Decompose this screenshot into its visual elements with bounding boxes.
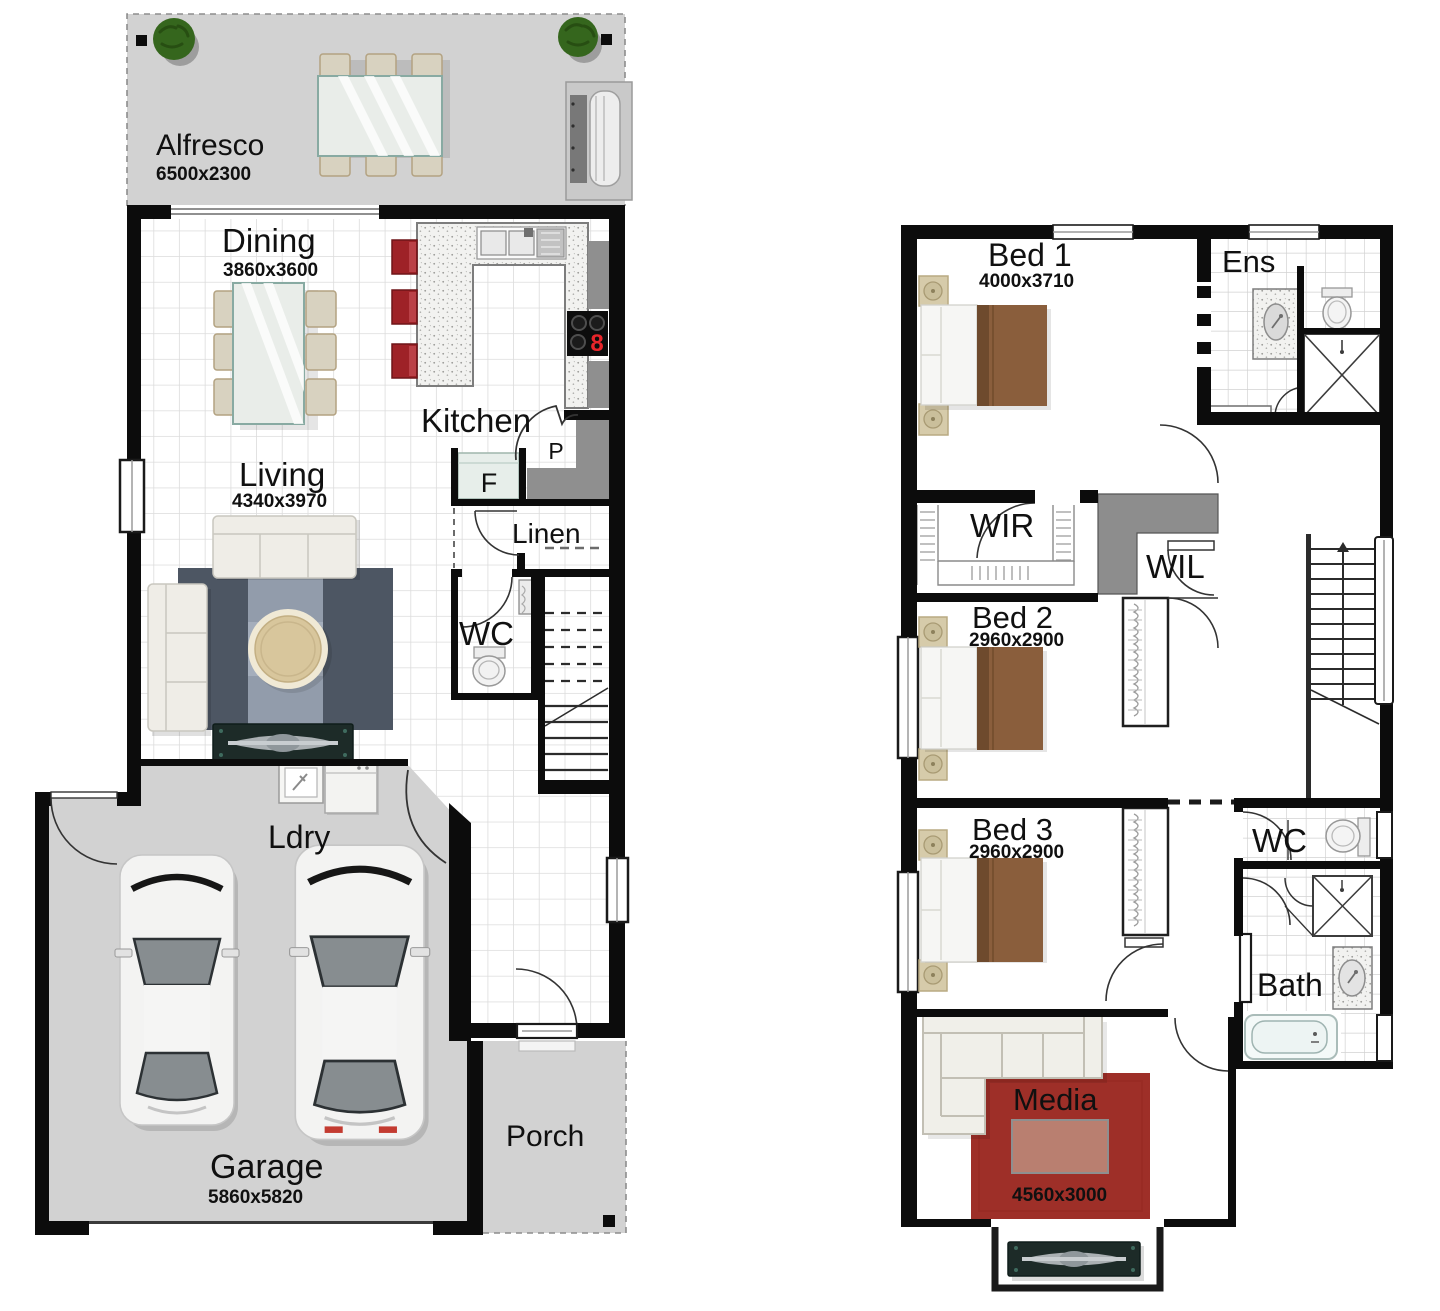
svg-text:Linen: Linen (512, 518, 581, 549)
svg-text:Ldry: Ldry (268, 819, 330, 855)
svg-text:WC: WC (1252, 822, 1307, 859)
svg-text:Dining: Dining (222, 222, 316, 259)
svg-text:Alfresco: Alfresco (156, 129, 264, 162)
svg-text:WIR: WIR (970, 507, 1034, 544)
svg-text:2960x2900: 2960x2900 (969, 842, 1064, 863)
svg-text:Bed 1: Bed 1 (988, 237, 1072, 273)
svg-text:4000x3710: 4000x3710 (979, 271, 1074, 292)
svg-text:Kitchen: Kitchen (421, 402, 531, 439)
svg-text:Media: Media (1013, 1082, 1098, 1117)
svg-text:8: 8 (590, 330, 603, 357)
svg-text:Ens: Ens (1222, 244, 1275, 279)
svg-text:6500x2300: 6500x2300 (156, 164, 251, 185)
svg-text:2960x2900: 2960x2900 (969, 630, 1064, 651)
svg-text:WIL: WIL (1146, 548, 1205, 585)
svg-text:5860x5820: 5860x5820 (208, 1187, 303, 1208)
svg-text:4340x3970: 4340x3970 (232, 491, 327, 512)
svg-text:P: P (548, 438, 563, 464)
svg-text:Living: Living (239, 456, 325, 493)
svg-text:Garage: Garage (210, 1148, 323, 1186)
svg-text:F: F (481, 468, 498, 498)
svg-text:Porch: Porch (506, 1120, 584, 1153)
svg-text:3860x3600: 3860x3600 (223, 260, 318, 281)
svg-text:4560x3000: 4560x3000 (1012, 1185, 1107, 1206)
svg-text:Bath: Bath (1257, 967, 1323, 1003)
svg-text:WC: WC (459, 615, 514, 652)
